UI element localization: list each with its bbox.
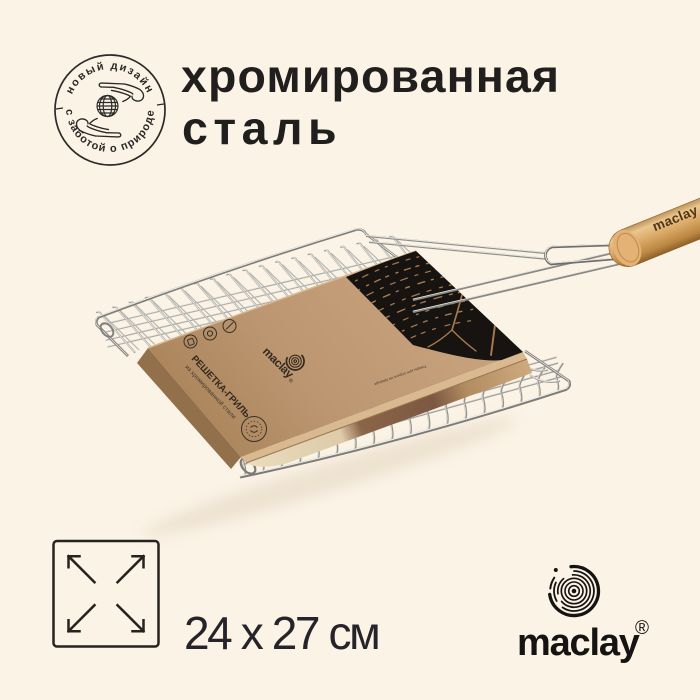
svg-text:24 x 27 см: 24 x 27 см <box>184 607 378 659</box>
svg-text:сталь: сталь <box>182 102 342 154</box>
svg-text:®: ® <box>635 618 649 639</box>
svg-text:хромированная: хромированная <box>181 50 560 102</box>
svg-text:maclay: maclay <box>517 622 640 664</box>
